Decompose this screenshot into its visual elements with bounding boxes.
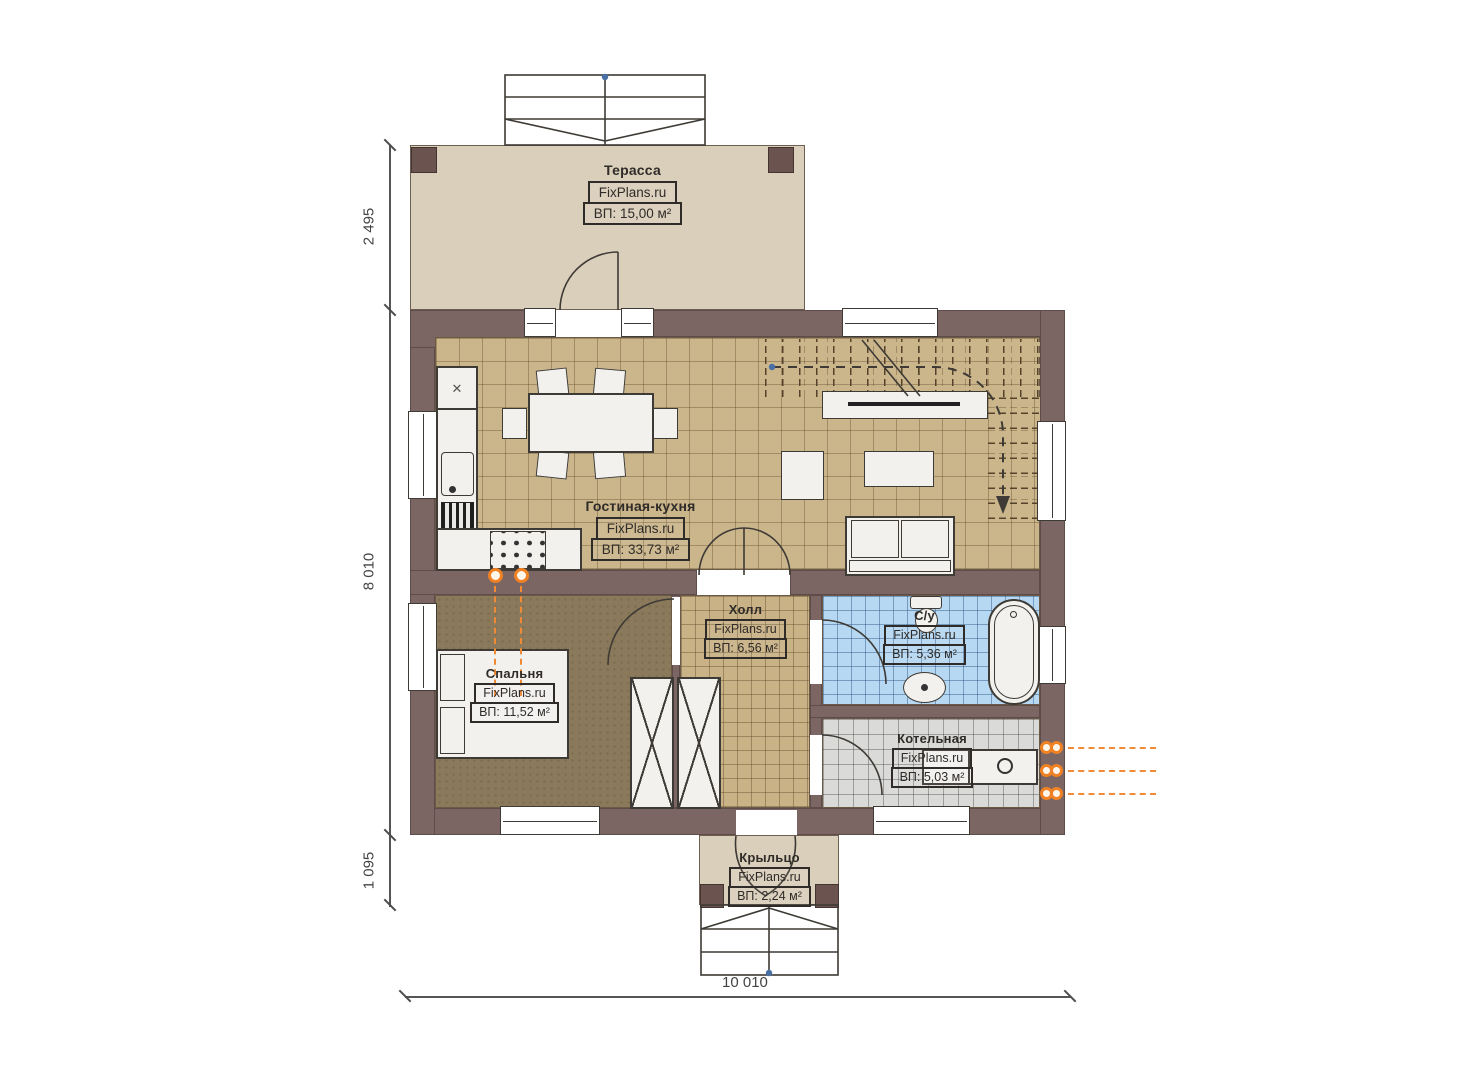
sofa-cushion xyxy=(851,520,899,558)
dining-chair xyxy=(536,449,570,479)
stairs-winder-treads xyxy=(988,397,1040,519)
room-name: Спальня xyxy=(452,666,577,681)
wardrobe xyxy=(677,677,721,809)
room-name: Холл xyxy=(688,602,803,617)
dining-chair xyxy=(653,408,678,439)
area-box: ВП: 11,52 м² xyxy=(470,702,559,723)
window-bedroom xyxy=(408,603,437,691)
tv xyxy=(848,402,960,406)
porch-steps xyxy=(701,905,838,975)
window-kitchen xyxy=(408,411,437,499)
watermark-box: FixPlans.ru xyxy=(588,181,678,204)
boiler-unit xyxy=(997,758,1013,774)
fridge-cross-icon: ✕ xyxy=(452,381,463,396)
room-label-living: Гостиная-кухня FixPlans.ru ВП: 33,73 м² xyxy=(548,498,733,561)
dining-chair xyxy=(502,408,527,439)
coffee-table xyxy=(864,451,934,487)
window-living-east xyxy=(1037,421,1066,521)
doorway-terrace xyxy=(556,310,621,337)
room-name: Терасса xyxy=(540,162,725,178)
area-box: ВП: 6,56 м² xyxy=(704,638,787,659)
room-label-hall: Холл FixPlans.ru ВП: 6,56 м² xyxy=(688,602,803,659)
watermark-box: FixPlans.ru xyxy=(596,517,686,540)
room-label-terrace: Терасса FixPlans.ru ВП: 15,00 м² xyxy=(540,162,725,225)
utility-connection-icon xyxy=(1050,764,1063,777)
room-name: Гостиная-кухня xyxy=(548,498,733,514)
floor-plan: 2 495 8 010 1 095 10 010 ✕ xyxy=(0,0,1473,1080)
room-label-porch: Крыльцо FixPlans.ru ВП: 2,24 м² xyxy=(702,850,837,907)
dim-house-depth: 8 010 xyxy=(360,553,377,591)
window-terrace-door-side xyxy=(621,308,654,337)
area-box: ВП: 2,24 м² xyxy=(728,886,811,907)
sink-faucet xyxy=(449,486,456,493)
dim-terrace-depth: 2 495 xyxy=(360,208,377,246)
wardrobe xyxy=(630,677,674,809)
utility-connection-icon xyxy=(1050,787,1063,800)
watermark-box: FixPlans.ru xyxy=(729,867,810,888)
watermark-box: FixPlans.ru xyxy=(705,619,786,640)
sofa-back xyxy=(849,560,951,572)
window-living-north xyxy=(842,308,938,337)
window-terrace-door-side xyxy=(524,308,556,337)
doorway-boiler xyxy=(810,735,822,795)
window-bathroom xyxy=(1037,626,1066,684)
room-name: С/у xyxy=(862,608,987,623)
sofa-cushion xyxy=(901,520,949,558)
area-box: ВП: 15,00 м² xyxy=(583,202,683,225)
utility-line xyxy=(1068,747,1156,749)
room-name: Котельная xyxy=(868,731,996,746)
bathtub-drain xyxy=(1010,611,1017,618)
window-boiler-south xyxy=(873,806,970,835)
bathtub-inner xyxy=(994,605,1034,699)
dim-house-width: 10 010 xyxy=(722,974,768,991)
dining-table xyxy=(528,393,654,453)
wall-right xyxy=(1040,310,1065,835)
watermark-box: FixPlans.ru xyxy=(474,683,555,704)
dim-porch-depth: 1 095 xyxy=(360,852,377,890)
dimension-line-bottom xyxy=(405,996,1071,998)
terrace-steps xyxy=(505,75,705,145)
partition-bath-boiler xyxy=(810,705,1040,718)
partition-living-south-left xyxy=(410,570,697,595)
stove xyxy=(490,531,546,569)
room-label-bathroom: С/у FixPlans.ru ВП: 5,36 м² xyxy=(862,608,987,665)
room-name: Крыльцо xyxy=(702,850,837,865)
doorway-living-hall xyxy=(697,570,790,595)
terrace-post xyxy=(768,147,794,173)
terrace-post xyxy=(411,147,437,173)
area-box: ВП: 5,03 м² xyxy=(891,767,974,788)
room-label-bedroom: Спальня FixPlans.ru ВП: 11,52 м² xyxy=(452,666,577,723)
watermark-box: FixPlans.ru xyxy=(892,748,973,769)
gas-connection-icon xyxy=(514,568,529,583)
steps-axis-dot xyxy=(602,74,608,80)
room-label-boiler: Котельная FixPlans.ru ВП: 5,03 м² xyxy=(868,731,996,788)
utility-line xyxy=(1068,793,1156,795)
gas-connection-icon xyxy=(488,568,503,583)
dimension-line-left xyxy=(389,145,391,907)
fridge: ✕ xyxy=(436,366,478,410)
kitchen-sink xyxy=(441,452,474,496)
doorway-bedroom xyxy=(672,597,680,665)
window-bedroom-south xyxy=(500,806,600,835)
stairs-upper-flight xyxy=(765,339,1040,397)
utility-line xyxy=(1068,770,1156,772)
dining-chair xyxy=(593,450,626,480)
area-box: ВП: 33,73 м² xyxy=(591,538,691,561)
sink-drain xyxy=(921,684,928,691)
area-box: ВП: 5,36 м² xyxy=(883,644,966,665)
doorway-bathroom xyxy=(810,620,822,684)
armchair xyxy=(781,451,824,500)
utility-connection-icon xyxy=(1050,741,1063,754)
watermark-box: FixPlans.ru xyxy=(884,625,965,646)
doorway-entry xyxy=(736,810,797,835)
